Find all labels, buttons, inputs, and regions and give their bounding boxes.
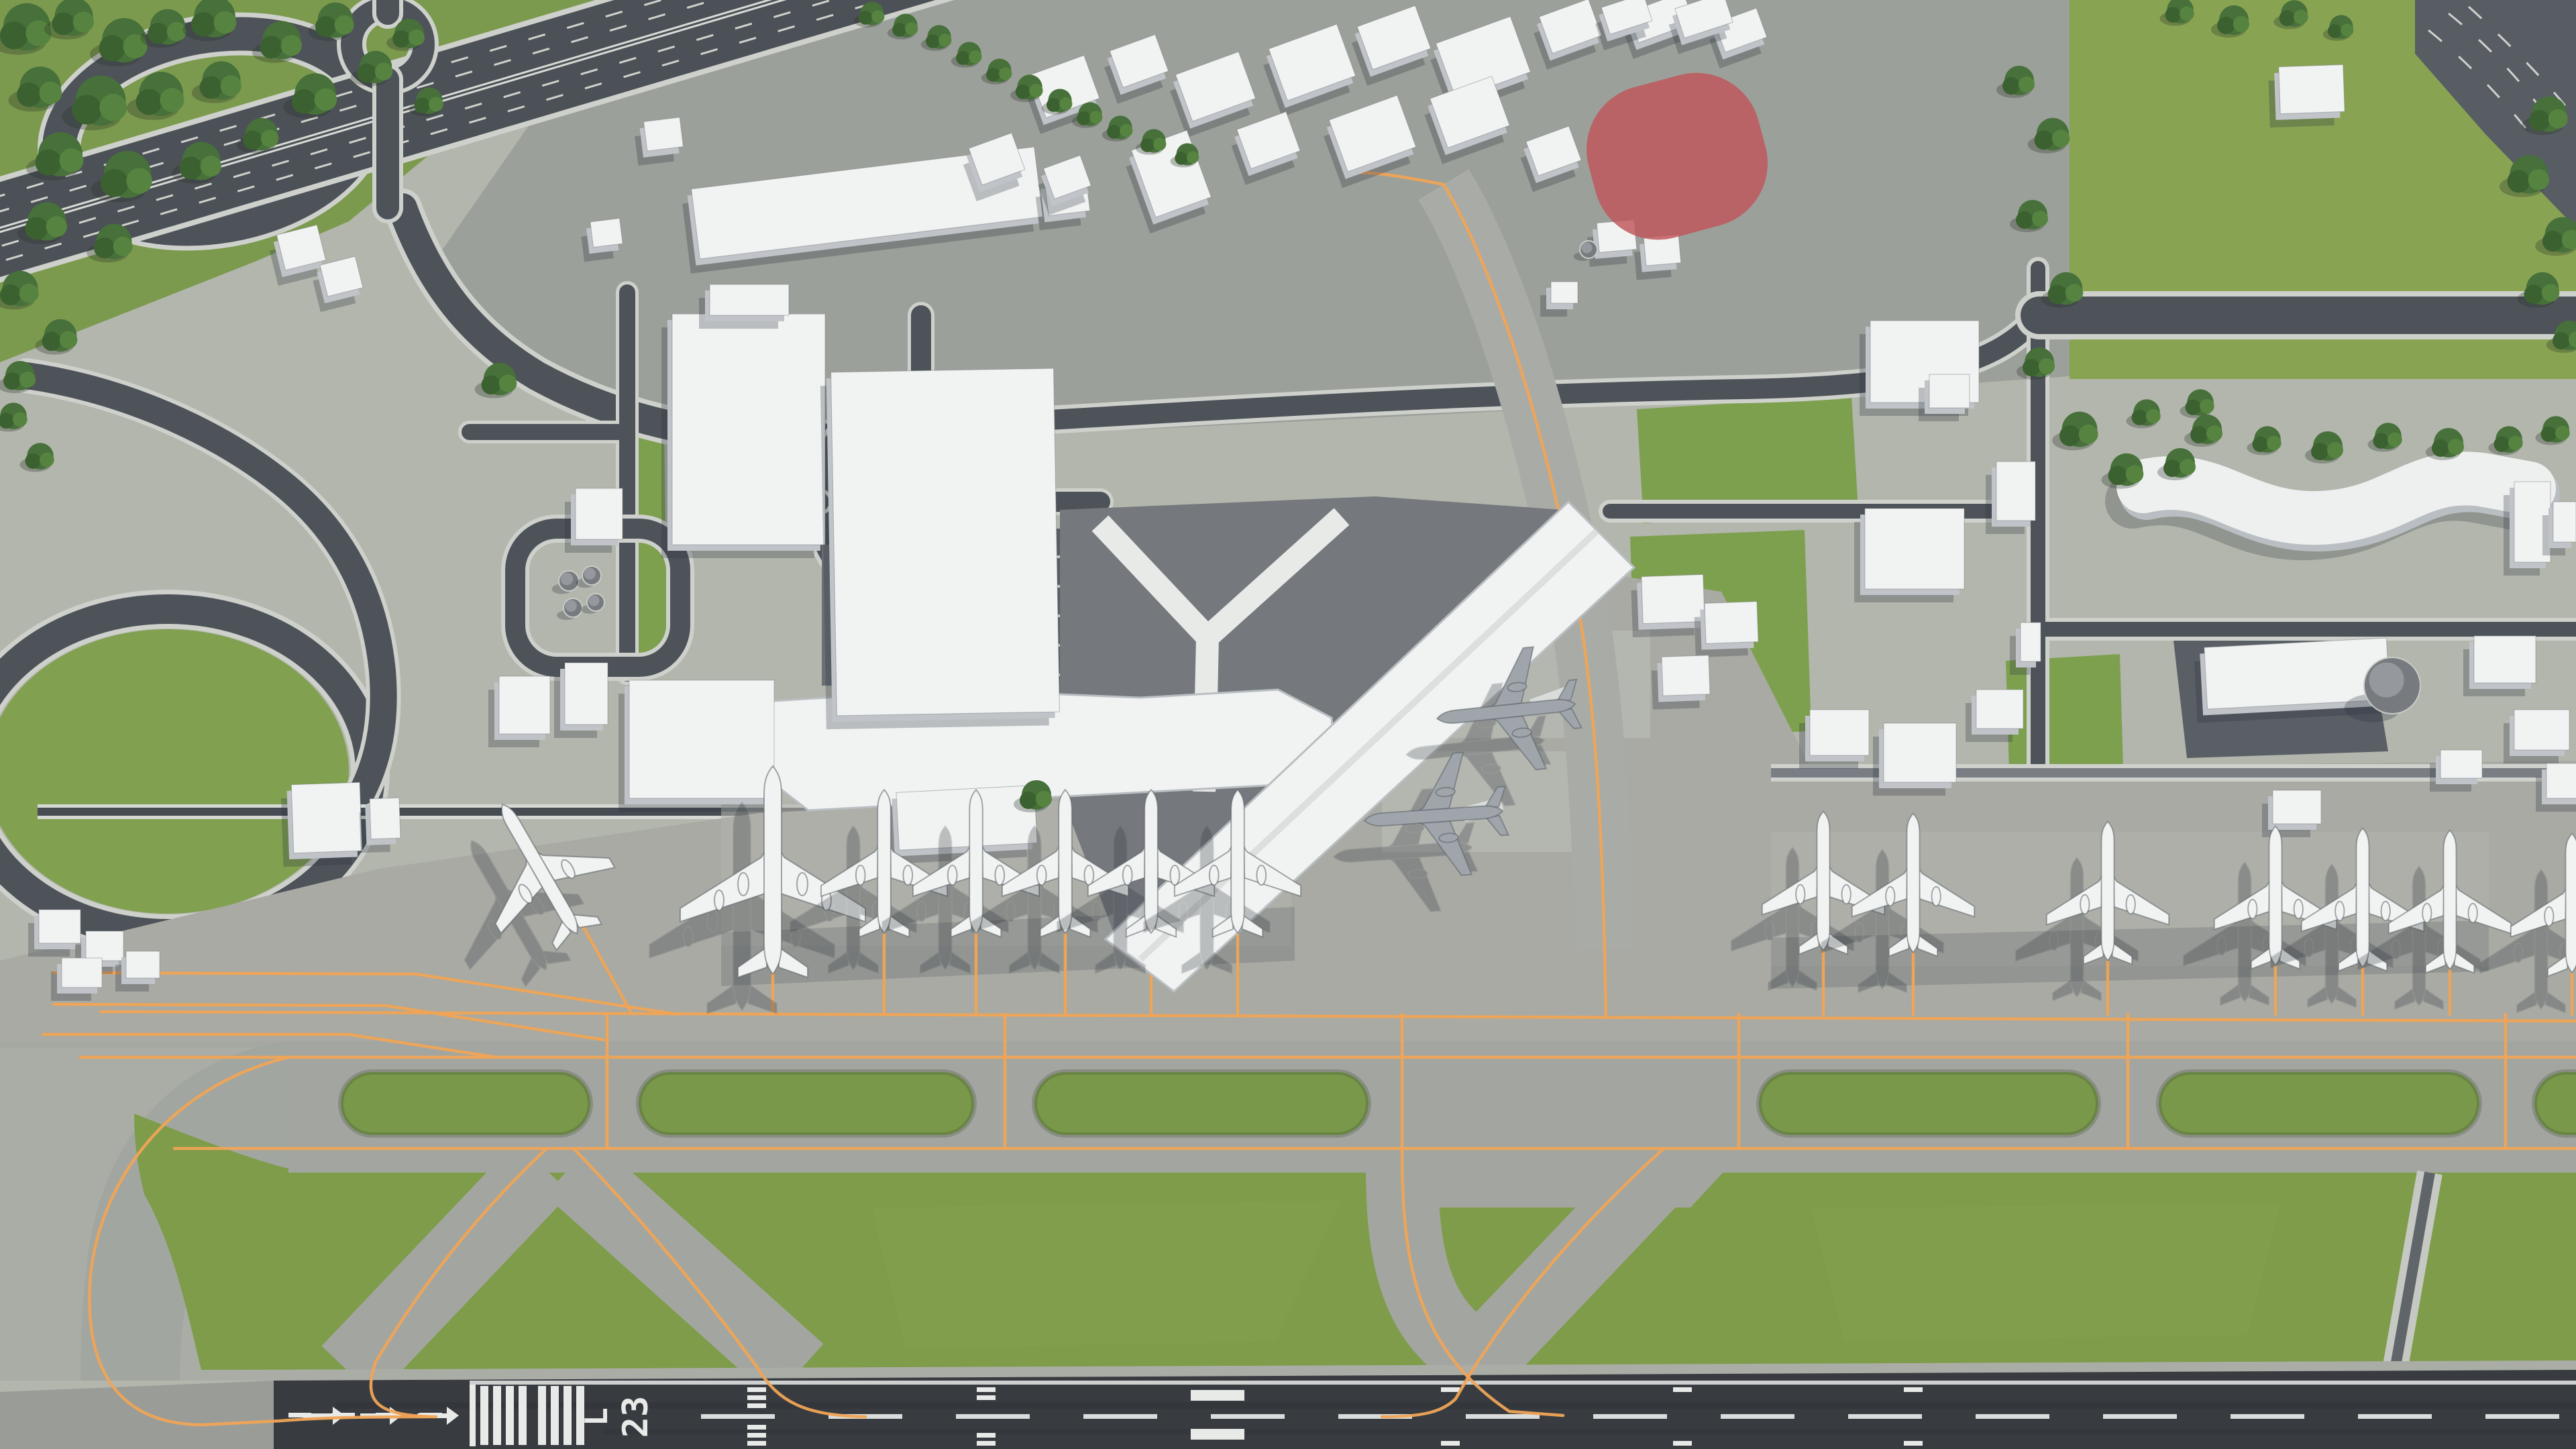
building-block	[2268, 64, 2345, 127]
runway-number: 23	[616, 1396, 656, 1438]
threshold-stripe	[563, 1386, 572, 1445]
building-block	[885, 786, 1038, 864]
building-block	[2536, 763, 2576, 812]
building-block	[2463, 636, 2536, 696]
building-block	[2504, 710, 2569, 763]
building-block	[280, 782, 362, 867]
threshold-stripe	[480, 1386, 488, 1445]
southwest-green-oval	[0, 629, 349, 914]
building-block	[1986, 462, 2035, 534]
airport-3d-render: L 23	[0, 0, 2576, 1449]
building-block	[1966, 690, 2023, 742]
grass-tone-patch-2	[1811, 1204, 2281, 1342]
building-block	[699, 284, 789, 329]
building-block	[565, 488, 623, 553]
taxiway-grass-island	[1759, 1072, 2098, 1135]
building-block	[820, 368, 1060, 729]
building-block	[1631, 574, 1705, 637]
taxiway-system	[0, 1041, 2576, 1381]
building-block	[1873, 723, 1956, 796]
threshold-stripe	[506, 1386, 514, 1445]
building-block	[619, 680, 774, 812]
runway-edge-line	[470, 1381, 2576, 1385]
taxiway-grass-island	[341, 1072, 590, 1135]
taxiway-grass-island	[1034, 1072, 1368, 1135]
runway-side-letter: L	[578, 1407, 614, 1426]
runway-zone: L 23	[0, 1360, 2576, 1449]
grass-tone-patch-1	[872, 1201, 1342, 1348]
taxiway-grass-island	[639, 1072, 974, 1135]
building-block	[1854, 508, 1964, 602]
building-block	[554, 663, 608, 738]
threshold-stripe	[493, 1386, 501, 1445]
threshold-pavement	[0, 1381, 274, 1449]
taxiway-grass-island	[2159, 1072, 2479, 1135]
building-block	[1799, 710, 1869, 769]
threshold-stripe	[551, 1386, 559, 1445]
taxiway-grass-island	[2534, 1072, 2576, 1135]
building-block	[661, 314, 825, 558]
threshold-stripe	[538, 1386, 546, 1445]
threshold-stripe	[519, 1386, 527, 1445]
building-block	[488, 676, 550, 747]
